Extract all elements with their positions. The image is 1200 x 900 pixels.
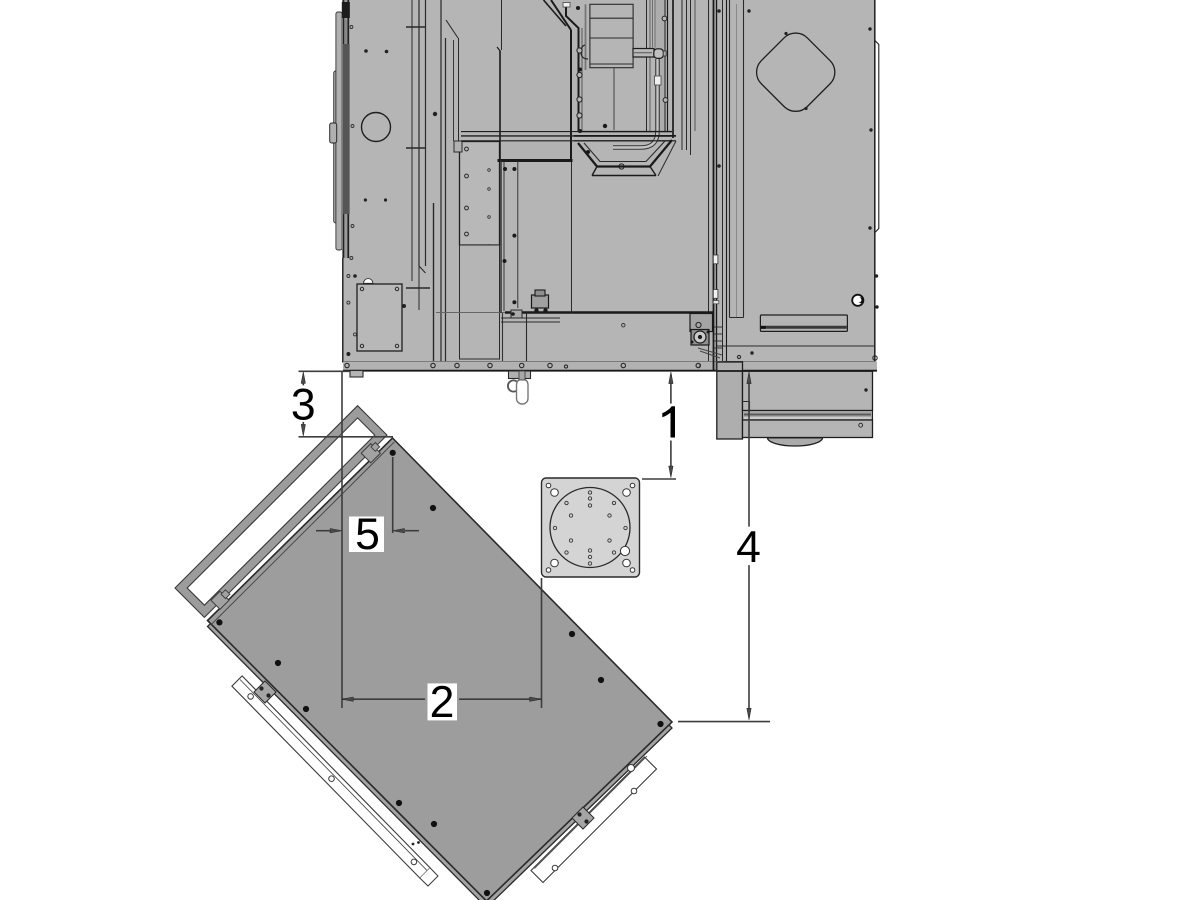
- svg-text:3: 3: [291, 381, 316, 430]
- svg-text:4: 4: [736, 523, 761, 572]
- svg-text:2: 2: [430, 678, 455, 727]
- svg-text:5: 5: [355, 510, 380, 559]
